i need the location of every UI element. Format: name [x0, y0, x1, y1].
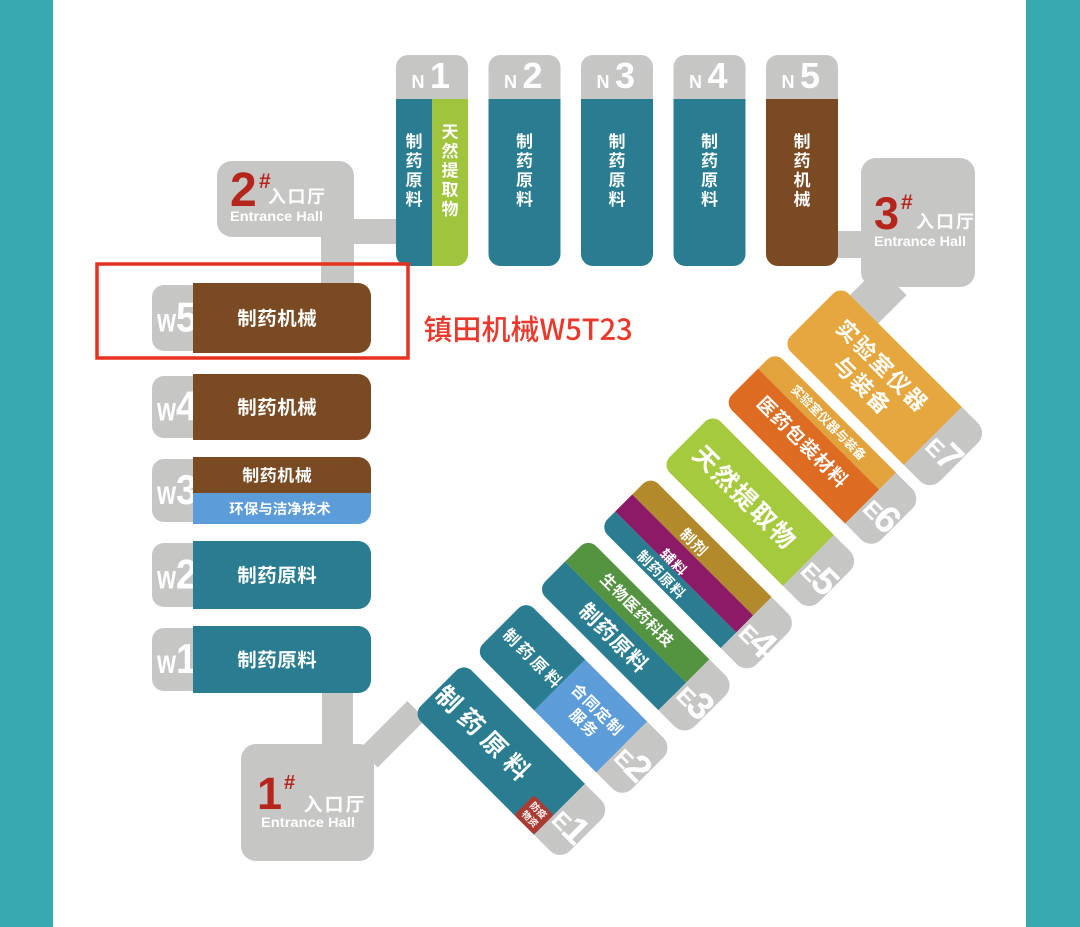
svg-text:Entrance Hall: Entrance Hall — [874, 234, 966, 249]
svg-text:N: N — [597, 72, 610, 92]
svg-text:N: N — [689, 72, 702, 92]
svg-text:#: # — [259, 170, 271, 193]
svg-text:w: w — [156, 302, 176, 339]
svg-text:w: w — [156, 391, 176, 428]
svg-text:4: 4 — [707, 55, 727, 96]
svg-text:w: w — [156, 559, 176, 596]
svg-text:3: 3 — [615, 55, 635, 96]
svg-text:N: N — [412, 72, 425, 92]
svg-text:5: 5 — [800, 55, 820, 96]
svg-text:N: N — [782, 72, 795, 92]
svg-text:#: # — [284, 772, 295, 794]
svg-text:Entrance Hall: Entrance Hall — [230, 209, 323, 224]
svg-text:w: w — [156, 474, 176, 511]
svg-text:N: N — [504, 72, 517, 92]
svg-text:3: 3 — [874, 188, 899, 239]
svg-text:2: 2 — [522, 55, 542, 96]
svg-text:1: 1 — [430, 55, 450, 96]
svg-text:1: 1 — [257, 768, 282, 819]
svg-text:#: # — [901, 191, 913, 214]
svg-text:w: w — [156, 643, 176, 680]
svg-text:Entrance Hall: Entrance Hall — [261, 815, 355, 830]
